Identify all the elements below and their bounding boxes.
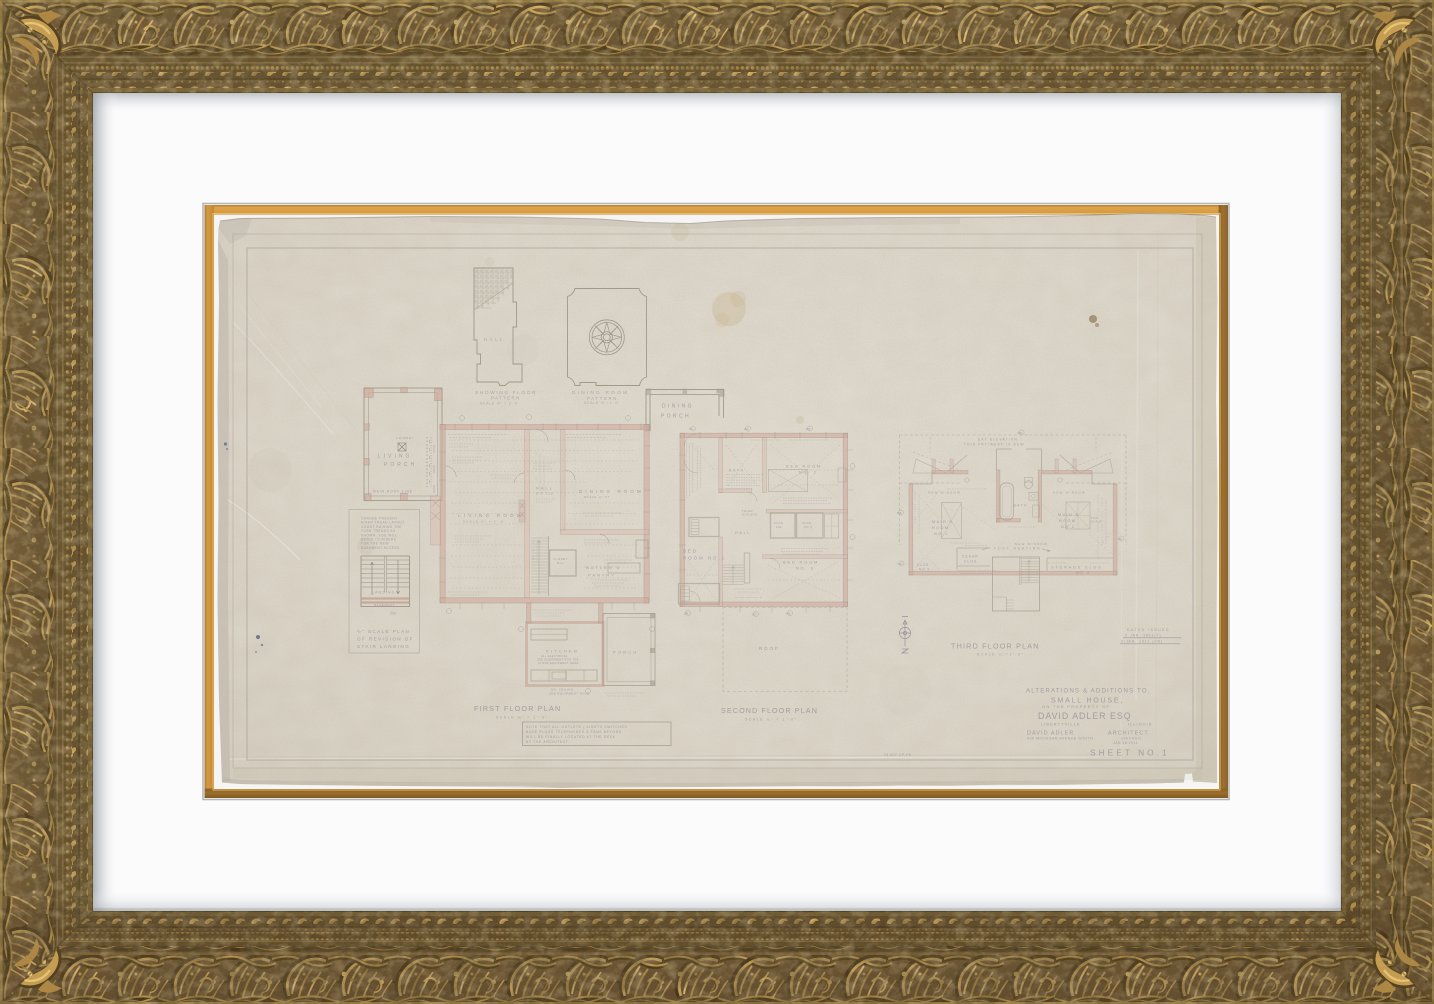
svg-text:BED ROOM: BED ROOM (783, 560, 819, 565)
svg-text:DATES ISSUED: DATES ISSUED (1127, 628, 1170, 632)
svg-text:CLOS: CLOS (917, 563, 929, 567)
svg-text:No1: No1 (557, 561, 564, 565)
svg-text:MAID'S: MAID'S (932, 520, 953, 524)
svg-text:SCALE ½"=1'-0": SCALE ½"=1'-0" (584, 401, 620, 405)
svg-text:OF REVISION OF: OF REVISION OF (357, 637, 414, 642)
svg-text:LIBERTYVILLE: LIBERTYVILLE (1041, 722, 1081, 727)
svg-text:THIS FRT/WEST IS NEW: THIS FRT/WEST IS NEW (964, 443, 1025, 447)
svg-text:THIRD FLOOR PLAN: THIRD FLOOR PLAN (951, 642, 1040, 651)
svg-text:PORCH: PORCH (613, 650, 638, 655)
svg-text:SEE EQUIPMENT FOR THE: SEE EQUIPMENT FOR THE (537, 658, 579, 662)
svg-text:CHIMNEY: CHIMNEY (396, 436, 414, 440)
svg-text:NO.3: NO.3 (919, 568, 930, 572)
svg-text:203: 203 (390, 612, 396, 616)
svg-text:DAVID ADLER ESQ: DAVID ADLER ESQ (1038, 711, 1132, 721)
svg-text:STOVE EQUIPMENT HERE: STOVE EQUIPMENT HERE (538, 661, 579, 665)
svg-text:BASEMENT ACCESS: BASEMENT ACCESS (361, 546, 400, 550)
svg-text:HALL: HALL (536, 486, 554, 491)
svg-text:FIRST FLOOR PLAN: FIRST FLOOR PLAN (474, 704, 561, 713)
svg-text:ROOM NO.1: ROOM NO.1 (683, 556, 726, 561)
svg-text:BASEMENT: BASEMENT (374, 603, 395, 607)
svg-text:NOTE THAT ALL OUTLETS ( LIGHTS: NOTE THAT ALL OUTLETS ( LIGHTS SWITCHES (526, 725, 627, 729)
svg-text:NEW WINDOW: NEW WINDOW (1015, 542, 1048, 546)
svg-text:NO.2: NO.2 (1061, 525, 1075, 529)
svg-text:BATH: BATH (729, 469, 745, 473)
svg-text:SCALE ¼"=1'-0": SCALE ¼"=1'-0" (977, 653, 1024, 657)
svg-text:BY THE ARCHITECT: BY THE ARCHITECT (526, 740, 569, 744)
svg-text:NO. 2: NO. 2 (1076, 571, 1090, 575)
svg-text:SHEET NO.1: SHEET NO.1 (1090, 748, 1170, 758)
svg-text:201: 201 (689, 427, 694, 431)
svg-text:FOOT HEATING: FOOT HEATING (994, 547, 1042, 551)
svg-text:ROOM: ROOM (932, 526, 949, 530)
svg-text:202: 202 (744, 427, 749, 431)
svg-text:2/JAN. 1911 (FN): 2/JAN. 1911 (FN) (1121, 640, 1163, 644)
svg-text:DINING ROOM: DINING ROOM (579, 489, 644, 494)
svg-text:NO.1: NO.1 (934, 532, 948, 536)
svg-text:CEDAR: CEDAR (962, 555, 979, 559)
svg-text:DINING: DINING (662, 404, 694, 410)
svg-text:SCALE ¼" FT: SCALE ¼" FT (584, 495, 610, 499)
svg-text:NEW WINDOW: NEW WINDOW (928, 491, 961, 495)
svg-text:OUTLET: OUTLET (1091, 519, 1103, 523)
svg-text:26,607 CP-FE: 26,607 CP-FE (884, 753, 912, 757)
svg-text:ON THE PROPERTY OF: ON THE PROPERTY OF (1042, 704, 1110, 709)
svg-text:WILL BE FINALLY LOCATED AT THE: WILL BE FINALLY LOCATED AT THE DESK (526, 735, 616, 739)
svg-text:NEW WINDOW: NEW WINDOW (1053, 491, 1086, 495)
svg-text:HALL: HALL (735, 531, 751, 535)
svg-text:½" SCALE PLAN: ½" SCALE PLAN (357, 628, 410, 634)
svg-text:CHICAGO: CHICAGO (1121, 737, 1141, 741)
svg-text:SECOND FLOOR PLAN: SECOND FLOOR PLAN (721, 706, 818, 715)
svg-text:2 JAN. 1911(?): 2 JAN. 1911(?) (1125, 634, 1162, 638)
svg-text:206: 206 (786, 611, 791, 615)
svg-text:KITCHEN: KITCHEN (546, 649, 579, 654)
svg-text:ROOF: ROOF (759, 646, 780, 651)
svg-text:HALL: HALL (484, 337, 505, 342)
svg-text:SCALE ¼" = 1'-0": SCALE ¼" = 1'-0" (463, 520, 506, 524)
svg-text:203: 203 (806, 427, 811, 431)
svg-text:306: 306 (1018, 431, 1023, 435)
svg-text:OUTLETS: OUTLETS (742, 513, 758, 517)
svg-text:MAID'S: MAID'S (1058, 513, 1079, 517)
svg-text:NO. 3: NO. 3 (796, 566, 814, 571)
svg-text:LIVING: LIVING (378, 454, 412, 460)
svg-text:THIS: THIS (1091, 516, 1098, 520)
svg-text:BED: BED (683, 549, 698, 554)
svg-text:PATTERN: PATTERN (491, 396, 521, 401)
svg-text:SCALE ¼" = 1'-0": SCALE ¼" = 1'-0" (745, 718, 797, 722)
svg-text:BATH: BATH (1014, 504, 1028, 508)
svg-text:LIVING ROOM: LIVING ROOM (458, 513, 524, 518)
svg-text:PORCH: PORCH (661, 414, 691, 420)
svg-text:SEE EQUIPMENT NO(9): SEE EQUIPMENT NO(9) (549, 691, 590, 695)
svg-text:204: 204 (684, 611, 689, 615)
svg-text:304: 304 (898, 562, 903, 566)
svg-text:SCALE ½" = 1'-0": SCALE ½" = 1'-0" (480, 402, 520, 406)
svg-text:8'-0" CLG: 8'-0" CLG (536, 492, 554, 496)
svg-text:207: 207 (752, 612, 757, 616)
svg-text:NO. 2: NO. 2 (799, 470, 817, 475)
svg-text:SCALE ¼" = 1'-0": SCALE ¼" = 1'-0" (496, 716, 548, 720)
svg-text:ROOM: ROOM (1059, 519, 1076, 523)
svg-text:MAIN ROOF LINE: MAIN ROOF LINE (373, 490, 413, 494)
svg-text:STAIR LANDING: STAIR LANDING (357, 644, 410, 649)
svg-text:ALTERATIONS & ADDITIONS TO,: ALTERATIONS & ADDITIONS TO, (1026, 688, 1150, 695)
svg-text:304: 304 (1118, 537, 1123, 541)
svg-text:BASE PLUGS TELEPHONES & FANS B: BASE PLUGS TELEPHONES & FANS BEYOND (526, 730, 622, 734)
svg-text:NO.4: NO.4 (804, 525, 812, 529)
svg-text:STORAGE CLOS: STORAGE CLOS (1051, 566, 1103, 570)
svg-text:435 MICHIGAN AVENUE SOUTH: 435 MICHIGAN AVENUE SOUTH (1027, 737, 1093, 741)
svg-text:EXT ELEVATION: EXT ELEVATION (978, 438, 1018, 442)
svg-text:BED ROOM: BED ROOM (786, 464, 822, 469)
svg-text:305: 305 (897, 511, 902, 515)
svg-text:CLOS.: CLOS. (964, 560, 979, 564)
svg-text:LANDING: LANDING (372, 591, 395, 595)
svg-text:BUTLER'S: BUTLER'S (586, 565, 621, 570)
svg-text:ALL ELECTRICAL: ALL ELECTRICAL (541, 654, 568, 658)
svg-text:103: 103 (776, 525, 782, 529)
svg-text:ILLINOIS: ILLINOIS (1128, 722, 1152, 727)
svg-text:PORCH: PORCH (384, 462, 417, 468)
svg-text:JAN 16 1911: JAN 16 1911 (1113, 741, 1138, 745)
